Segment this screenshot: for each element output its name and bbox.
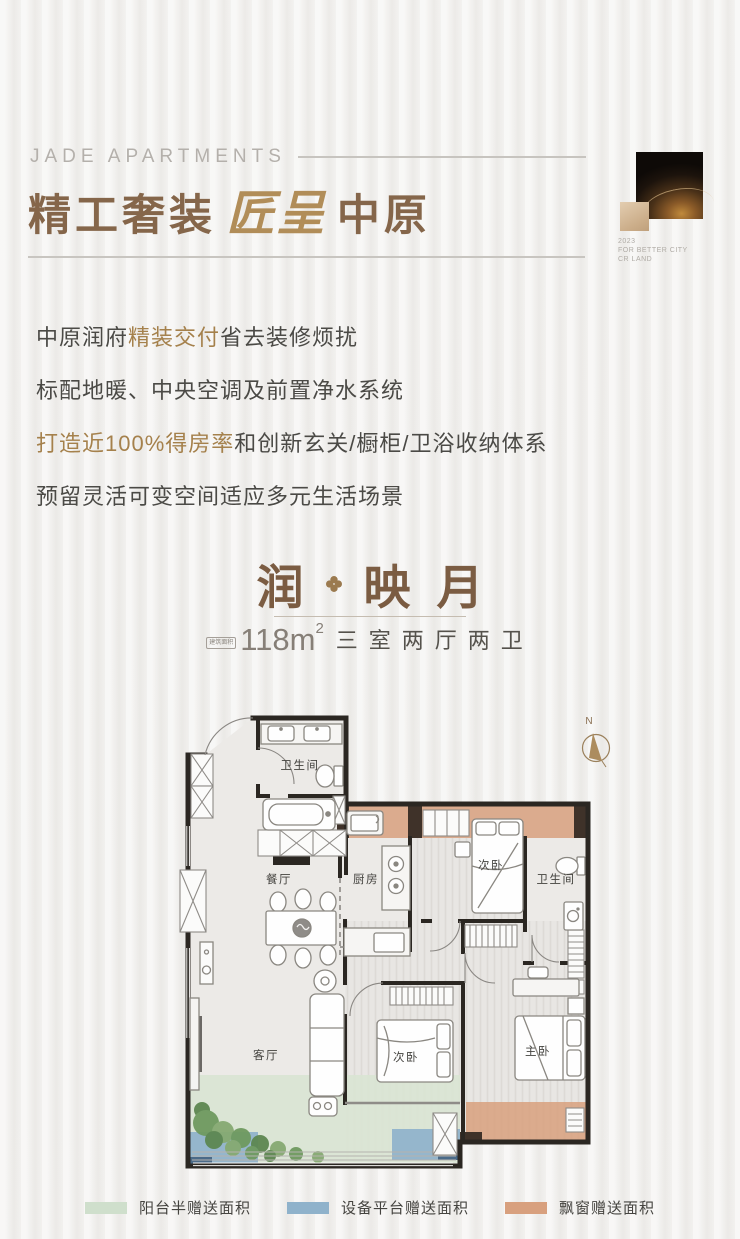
compass-icon: N [583, 716, 610, 767]
unit-name-rest: 映月 [364, 549, 510, 618]
unit-name: 润 映月 [0, 549, 740, 618]
highlight-text: 精装交付 [128, 325, 220, 350]
floorplan-drawing: 卫生间 餐厅 厨房 次卧 卫生间 客厅 次卧 主卧 N [178, 708, 620, 1192]
quatrefoil-ornament-icon [326, 576, 342, 592]
legend-swatch-balcony [85, 1202, 127, 1214]
legend-swatch-baywindow [505, 1202, 547, 1214]
header-divider [28, 256, 585, 258]
highlight-text: 打造近100%得房率 [36, 431, 234, 456]
room-label-master: 主卧 [525, 1045, 551, 1058]
badge-tan-square [620, 202, 649, 231]
area-superscript: 2 [315, 620, 323, 637]
room-label-bath2: 卫生间 [537, 872, 576, 886]
legend-item-equipment: 设备平台赠送面积 [287, 1197, 469, 1218]
unit-area-row: 建筑面积 118m2 三室两厅两卫 [0, 624, 740, 656]
brand-row: JADE APARTMENTS [30, 146, 586, 168]
unit-name-first: 润 [257, 549, 304, 618]
selling-points: 中原润府精装交付省去装修烦扰 标配地暖、中央空调及前置净水系统 打造近100%得… [36, 324, 548, 510]
headline-left: 精工奢装 [28, 193, 216, 240]
room-label-dining: 餐厅 [266, 872, 292, 886]
badge-year: 2023 [618, 237, 688, 246]
floorplan: 卫生间 餐厅 厨房 次卧 卫生间 客厅 次卧 主卧 N [178, 708, 620, 1192]
selling-point-3: 打造近100%得房率和创新玄关/橱柜/卫浴收纳体系 [36, 430, 548, 457]
room-label-kitchen: 厨房 [353, 873, 379, 886]
brand-rule-line [298, 156, 586, 158]
selling-point-4: 预留灵活可变空间适应多元生活场景 [36, 483, 548, 510]
room-label-bedroom3: 次卧 [393, 1050, 419, 1064]
badge-text: 2023 FOR BETTER CITY CR LAND [618, 237, 688, 264]
selling-point-1: 中原润府精装交付省去装修烦扰 [36, 324, 548, 351]
legend-item-balcony: 阳台半赠送面积 [85, 1197, 251, 1218]
room-label-bedroom2: 次卧 [478, 858, 504, 872]
headline: 精工奢装 匠呈 中原 [28, 174, 431, 244]
area-value: 118m2 [240, 624, 324, 656]
badge-company: CR LAND [618, 255, 688, 264]
badge-slogan: FOR BETTER CITY [618, 246, 688, 255]
headline-right: 中原 [337, 193, 431, 240]
rooms-summary: 三室两厅两卫 [336, 626, 534, 656]
unit-name-divider [274, 616, 466, 617]
area-tag: 建筑面积 [206, 637, 236, 649]
room-label-living: 客厅 [253, 1048, 279, 1062]
property-poster: JADE APARTMENTS 精工奢装 匠呈 中原 2023 FOR BETT… [0, 0, 740, 1239]
headline-script: 匠呈 [226, 188, 326, 241]
selling-point-2: 标配地暖、中央空调及前置净水系统 [36, 377, 548, 404]
legend-item-baywindow: 飘窗赠送面积 [505, 1197, 655, 1218]
legend-swatch-equipment [287, 1202, 329, 1214]
brand-name: JADE APARTMENTS [30, 146, 286, 168]
compass-north-label: N [585, 716, 592, 727]
room-label-bath1: 卫生间 [281, 758, 320, 772]
plan-legend: 阳台半赠送面积 设备平台赠送面积 飘窗赠送面积 [0, 1197, 740, 1218]
